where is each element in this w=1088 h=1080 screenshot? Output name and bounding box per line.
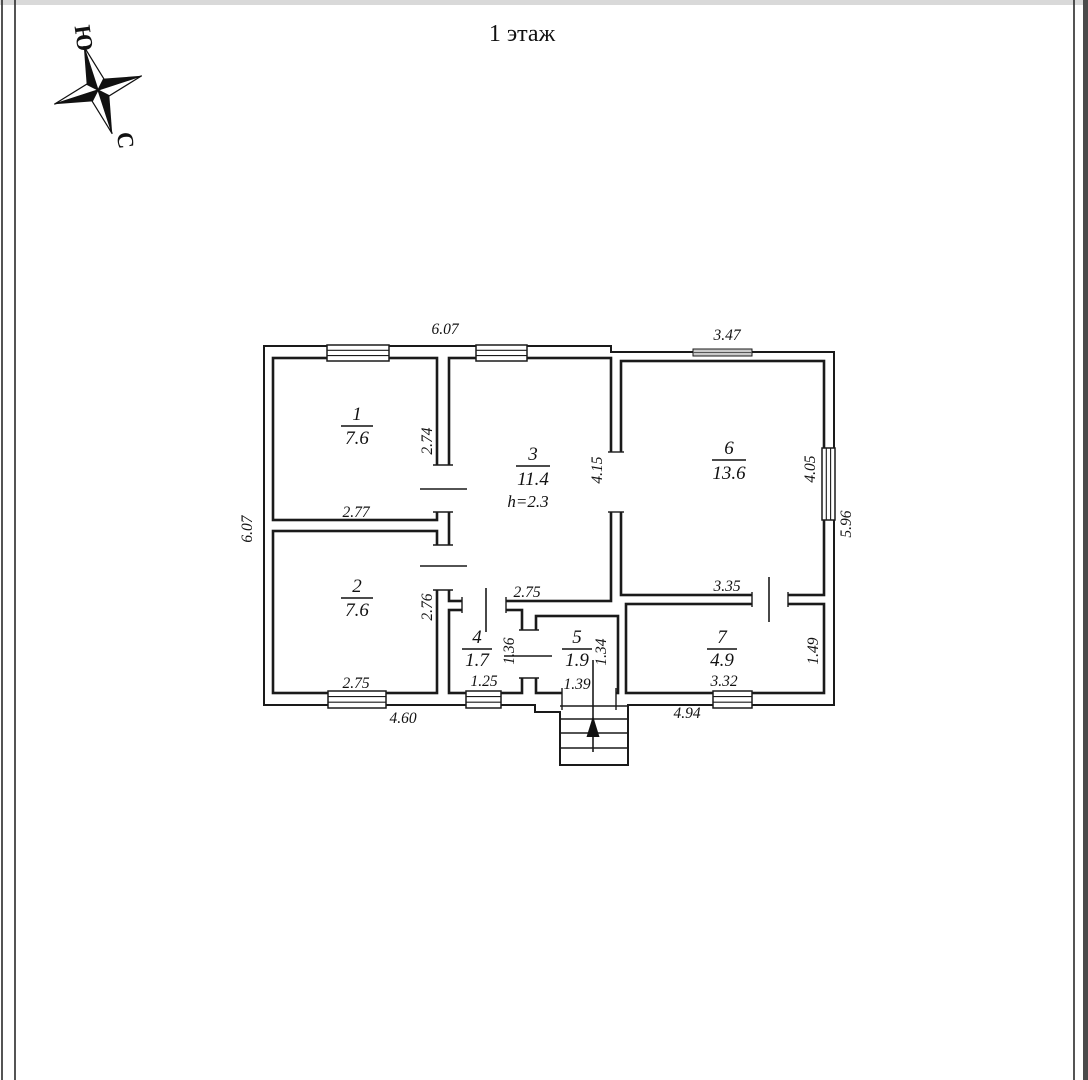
dim-bottom-right-width: 4.94 bbox=[673, 705, 700, 722]
window-bottom-room7 bbox=[713, 691, 752, 708]
room-2-area: 7.6 bbox=[345, 600, 369, 621]
room-4-area: 1.7 bbox=[465, 650, 490, 671]
dim-left-height: 6.07 bbox=[239, 514, 256, 542]
page-edge-artifacts bbox=[0, 0, 1088, 1080]
room-5-number: 5 bbox=[572, 627, 582, 648]
page-title: 1 этаж bbox=[489, 21, 556, 47]
room-3-area: 11.4 bbox=[517, 469, 549, 490]
dim-top-width: 6.07 bbox=[431, 321, 459, 338]
room-labels: 1 7.6 2 7.6 3 11.4 h=2.3 4 1.7 5 1.9 6 bbox=[341, 404, 746, 671]
window-bottom-room4 bbox=[466, 691, 501, 708]
dim-room3-side: 4.15 bbox=[589, 456, 606, 483]
dim-room6-bottom: 3.35 bbox=[712, 578, 740, 595]
window-top-room6 bbox=[693, 349, 752, 356]
room-6-number: 6 bbox=[724, 438, 734, 459]
page-top-edge bbox=[0, 0, 1088, 5]
dim-room5-side: 1.34 bbox=[593, 638, 610, 665]
dim-room4-side: 1.36 bbox=[501, 637, 518, 664]
room-3-label: 3 11.4 h=2.3 bbox=[507, 444, 550, 511]
dim-right-height: 5.96 bbox=[838, 510, 855, 537]
room-6-area: 13.6 bbox=[712, 463, 746, 484]
dim-top-right-width: 3.47 bbox=[712, 327, 741, 344]
room-5-label: 5 1.9 bbox=[562, 627, 592, 671]
room-2-label: 2 7.6 bbox=[341, 576, 373, 621]
room-7-label: 7 4.9 bbox=[707, 627, 737, 671]
room-5-area: 1.9 bbox=[565, 650, 589, 671]
dim-room5-bottom: 1.39 bbox=[563, 676, 590, 693]
room-3-height-note: h=2.3 bbox=[507, 492, 548, 511]
dimension-labels: 6.07 3.47 6.07 5.96 4.60 4.94 2.77 2.74 … bbox=[239, 321, 855, 727]
room-4-label: 4 1.7 bbox=[462, 627, 492, 671]
compass-north-label: С bbox=[112, 130, 139, 150]
dim-room2-side: 2.76 bbox=[419, 593, 436, 620]
room-2-number: 2 bbox=[352, 576, 362, 597]
dim-room4-bottom: 1.25 bbox=[470, 673, 497, 690]
room-4-number: 4 bbox=[472, 627, 482, 648]
room-1-label: 1 7.6 bbox=[341, 404, 373, 449]
dim-room6-side: 4.05 bbox=[802, 455, 819, 482]
dim-room7-bottom: 3.32 bbox=[709, 673, 737, 690]
compass-rose-icon: Ю С bbox=[33, 11, 162, 168]
dim-room1-side: 2.74 bbox=[419, 427, 436, 454]
window-top-room3 bbox=[476, 345, 527, 361]
compass-star-icon bbox=[40, 32, 156, 148]
page-right-edge bbox=[1083, 0, 1088, 1080]
room-1-area: 7.6 bbox=[345, 428, 369, 449]
dim-room3-bottom: 2.75 bbox=[513, 584, 540, 601]
dim-room7-side: 1.49 bbox=[805, 637, 822, 664]
floor-plan-drawing: 1 этаж Ю С bbox=[0, 0, 1088, 1080]
dim-room2-bottom: 2.75 bbox=[342, 675, 369, 692]
room-7-number: 7 bbox=[717, 627, 728, 648]
room-7-area: 4.9 bbox=[710, 650, 734, 671]
window-top-room1 bbox=[327, 345, 389, 361]
room-1-number: 1 bbox=[352, 404, 362, 425]
room-6-label: 6 13.6 bbox=[712, 438, 746, 484]
compass-south-label: Ю bbox=[69, 24, 97, 53]
dim-bottom-left-width: 4.60 bbox=[389, 710, 416, 727]
dim-room1-bottom: 2.77 bbox=[342, 504, 370, 521]
window-right-room6 bbox=[822, 448, 835, 520]
room-3-number: 3 bbox=[527, 444, 538, 465]
window-bottom-room2 bbox=[328, 691, 386, 708]
